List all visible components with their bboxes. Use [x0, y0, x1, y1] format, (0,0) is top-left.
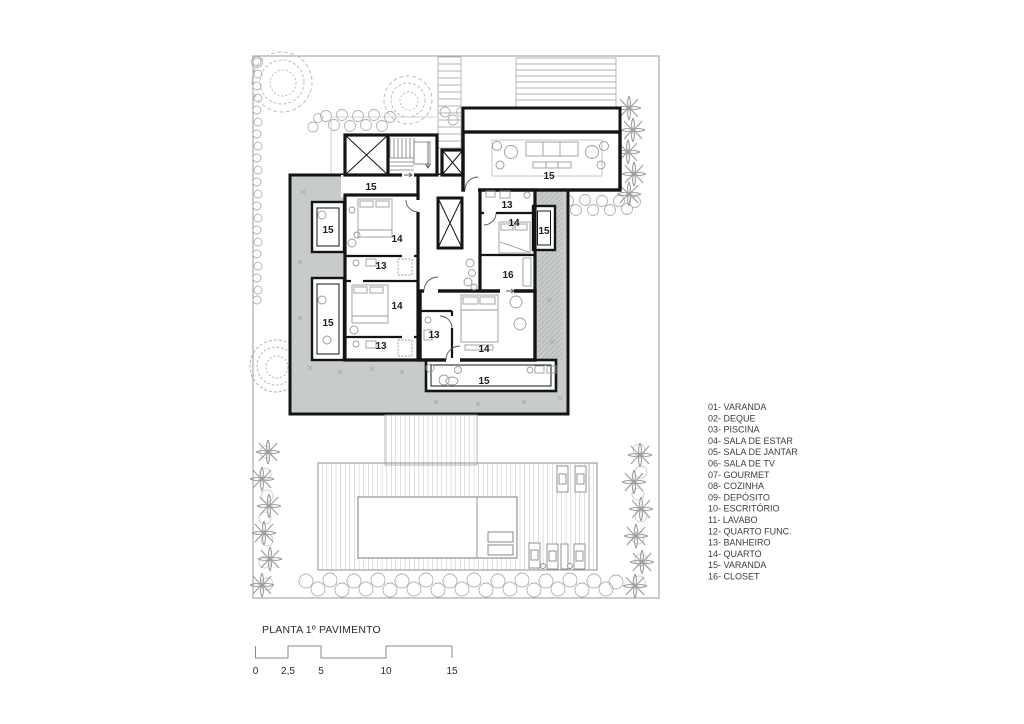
legend-item: 16- CLOSET: [708, 572, 760, 582]
room-label: 15: [543, 171, 555, 182]
room-label: 15: [478, 376, 490, 387]
pool-steps: [488, 545, 513, 555]
room-label: 13: [375, 341, 387, 352]
room-label: 14: [478, 344, 490, 355]
room-label: 13: [501, 200, 513, 211]
room-label: 14: [391, 234, 403, 245]
floor-plan-page: 15 15 13 14 15 15 14 13 16 14 15 13 13 1…: [0, 0, 1024, 724]
scale-label: 0: [253, 666, 259, 677]
room-label: 15: [322, 225, 334, 236]
plan-title: PLANTA 1º PAVIMENTO: [262, 624, 381, 636]
pool: [358, 497, 517, 558]
floor-plan-canvas: 15 15 13 14 15 15 14 13 16 14 15 13 13 1…: [0, 0, 1024, 724]
scale-label: 2,5: [281, 666, 295, 677]
pool-steps: [488, 532, 513, 542]
legend-item: 12- QUARTO FUNC.: [708, 526, 792, 536]
legend-item: 14- QUARTO: [708, 549, 762, 559]
scale-label: 10: [380, 666, 392, 677]
room-label: 16: [502, 270, 514, 281]
legend-item: 10- ESCRITÓRIO: [708, 504, 780, 514]
legend-item: 11- LAVABO: [708, 515, 758, 525]
scale-bar: 0 2,5 5 10 15: [253, 646, 458, 677]
room-label: 15: [365, 182, 377, 193]
room-label: 15: [322, 318, 334, 329]
legend-item: 06- SALA DE TV: [708, 459, 775, 469]
legend-item: 04- SALA DE ESTAR: [708, 436, 793, 446]
room-label: 14: [508, 218, 520, 229]
legend-item: 13- BANHEIRO: [708, 538, 771, 548]
legend-item: 01- VARANDA: [708, 402, 766, 412]
scale-label: 15: [446, 666, 458, 677]
legend-item: 09- DEPÓSITO: [708, 492, 770, 502]
room-label: 13: [375, 261, 387, 272]
legend-item: 08- COZINHA: [708, 481, 764, 491]
legend-item: 05- SALA DE JANTAR: [708, 447, 798, 457]
legend-item: 02- DEQUE: [708, 413, 756, 423]
room-label: 15: [538, 226, 550, 237]
legend-item: 07- GOURMET: [708, 470, 770, 480]
legend-item: 15- VARANDA: [708, 560, 766, 570]
scale-bar-line: [256, 646, 453, 658]
legend-item: 03- PISCINA: [708, 425, 760, 435]
room-label: 13: [428, 330, 440, 341]
scale-label: 5: [318, 666, 324, 677]
legend: 01- VARANDA 02- DEQUE 03- PISCINA 04- SA…: [708, 402, 798, 582]
room-label: 14: [391, 301, 403, 312]
